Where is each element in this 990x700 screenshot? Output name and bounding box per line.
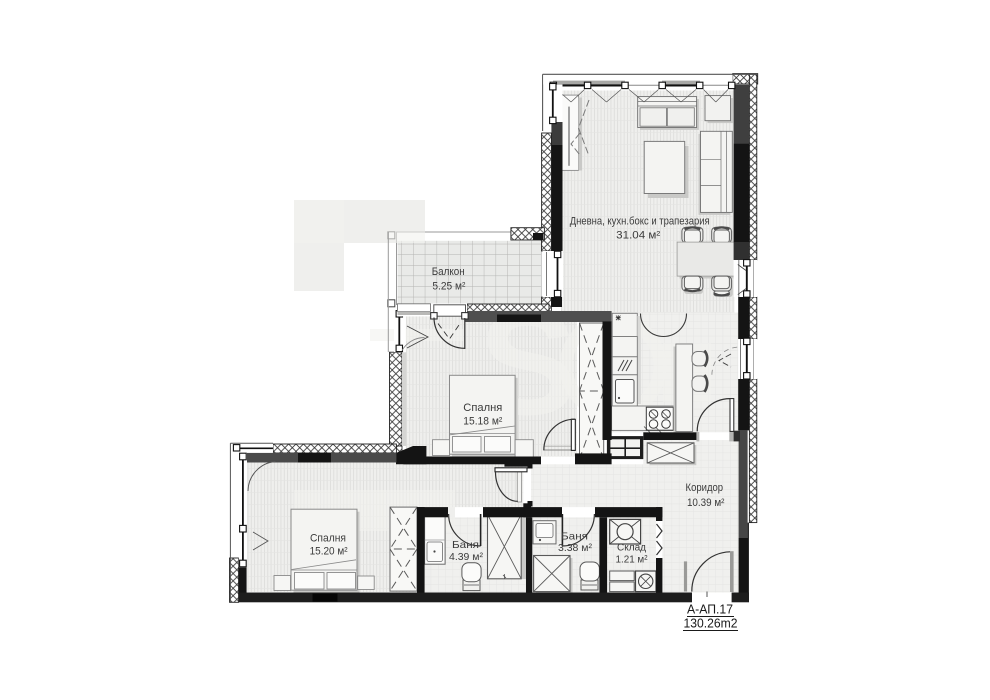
svg-text:130.26m2: 130.26m2 bbox=[684, 617, 738, 631]
svg-text:Спалня: Спалня bbox=[310, 532, 346, 544]
svg-text:Балкон: Балкон bbox=[432, 266, 465, 278]
svg-text:15.18 м²: 15.18 м² bbox=[463, 416, 502, 428]
svg-text:А-АП.17: А-АП.17 bbox=[687, 603, 733, 617]
svg-text:Дневна, кухн.бокс и трапезария: Дневна, кухн.бокс и трапезария bbox=[570, 216, 710, 228]
svg-text:Склад: Склад bbox=[617, 543, 646, 554]
svg-text:Баня: Баня bbox=[452, 540, 479, 551]
svg-text:5.25 м²: 5.25 м² bbox=[432, 281, 465, 293]
svg-text:3.38 м²: 3.38 м² bbox=[558, 543, 593, 554]
svg-text:Баня: Баня bbox=[561, 532, 588, 543]
svg-text:15.20 м²: 15.20 м² bbox=[310, 546, 348, 558]
svg-text:1.21 м²: 1.21 м² bbox=[616, 555, 649, 566]
svg-text:4.39 м²: 4.39 м² bbox=[449, 552, 484, 563]
svg-text:Коридор: Коридор bbox=[686, 482, 724, 494]
svg-text:31.04 м²: 31.04 м² bbox=[616, 230, 660, 242]
svg-text:10.39 м²: 10.39 м² bbox=[687, 497, 725, 509]
svg-text:Спалня: Спалня bbox=[463, 402, 502, 414]
